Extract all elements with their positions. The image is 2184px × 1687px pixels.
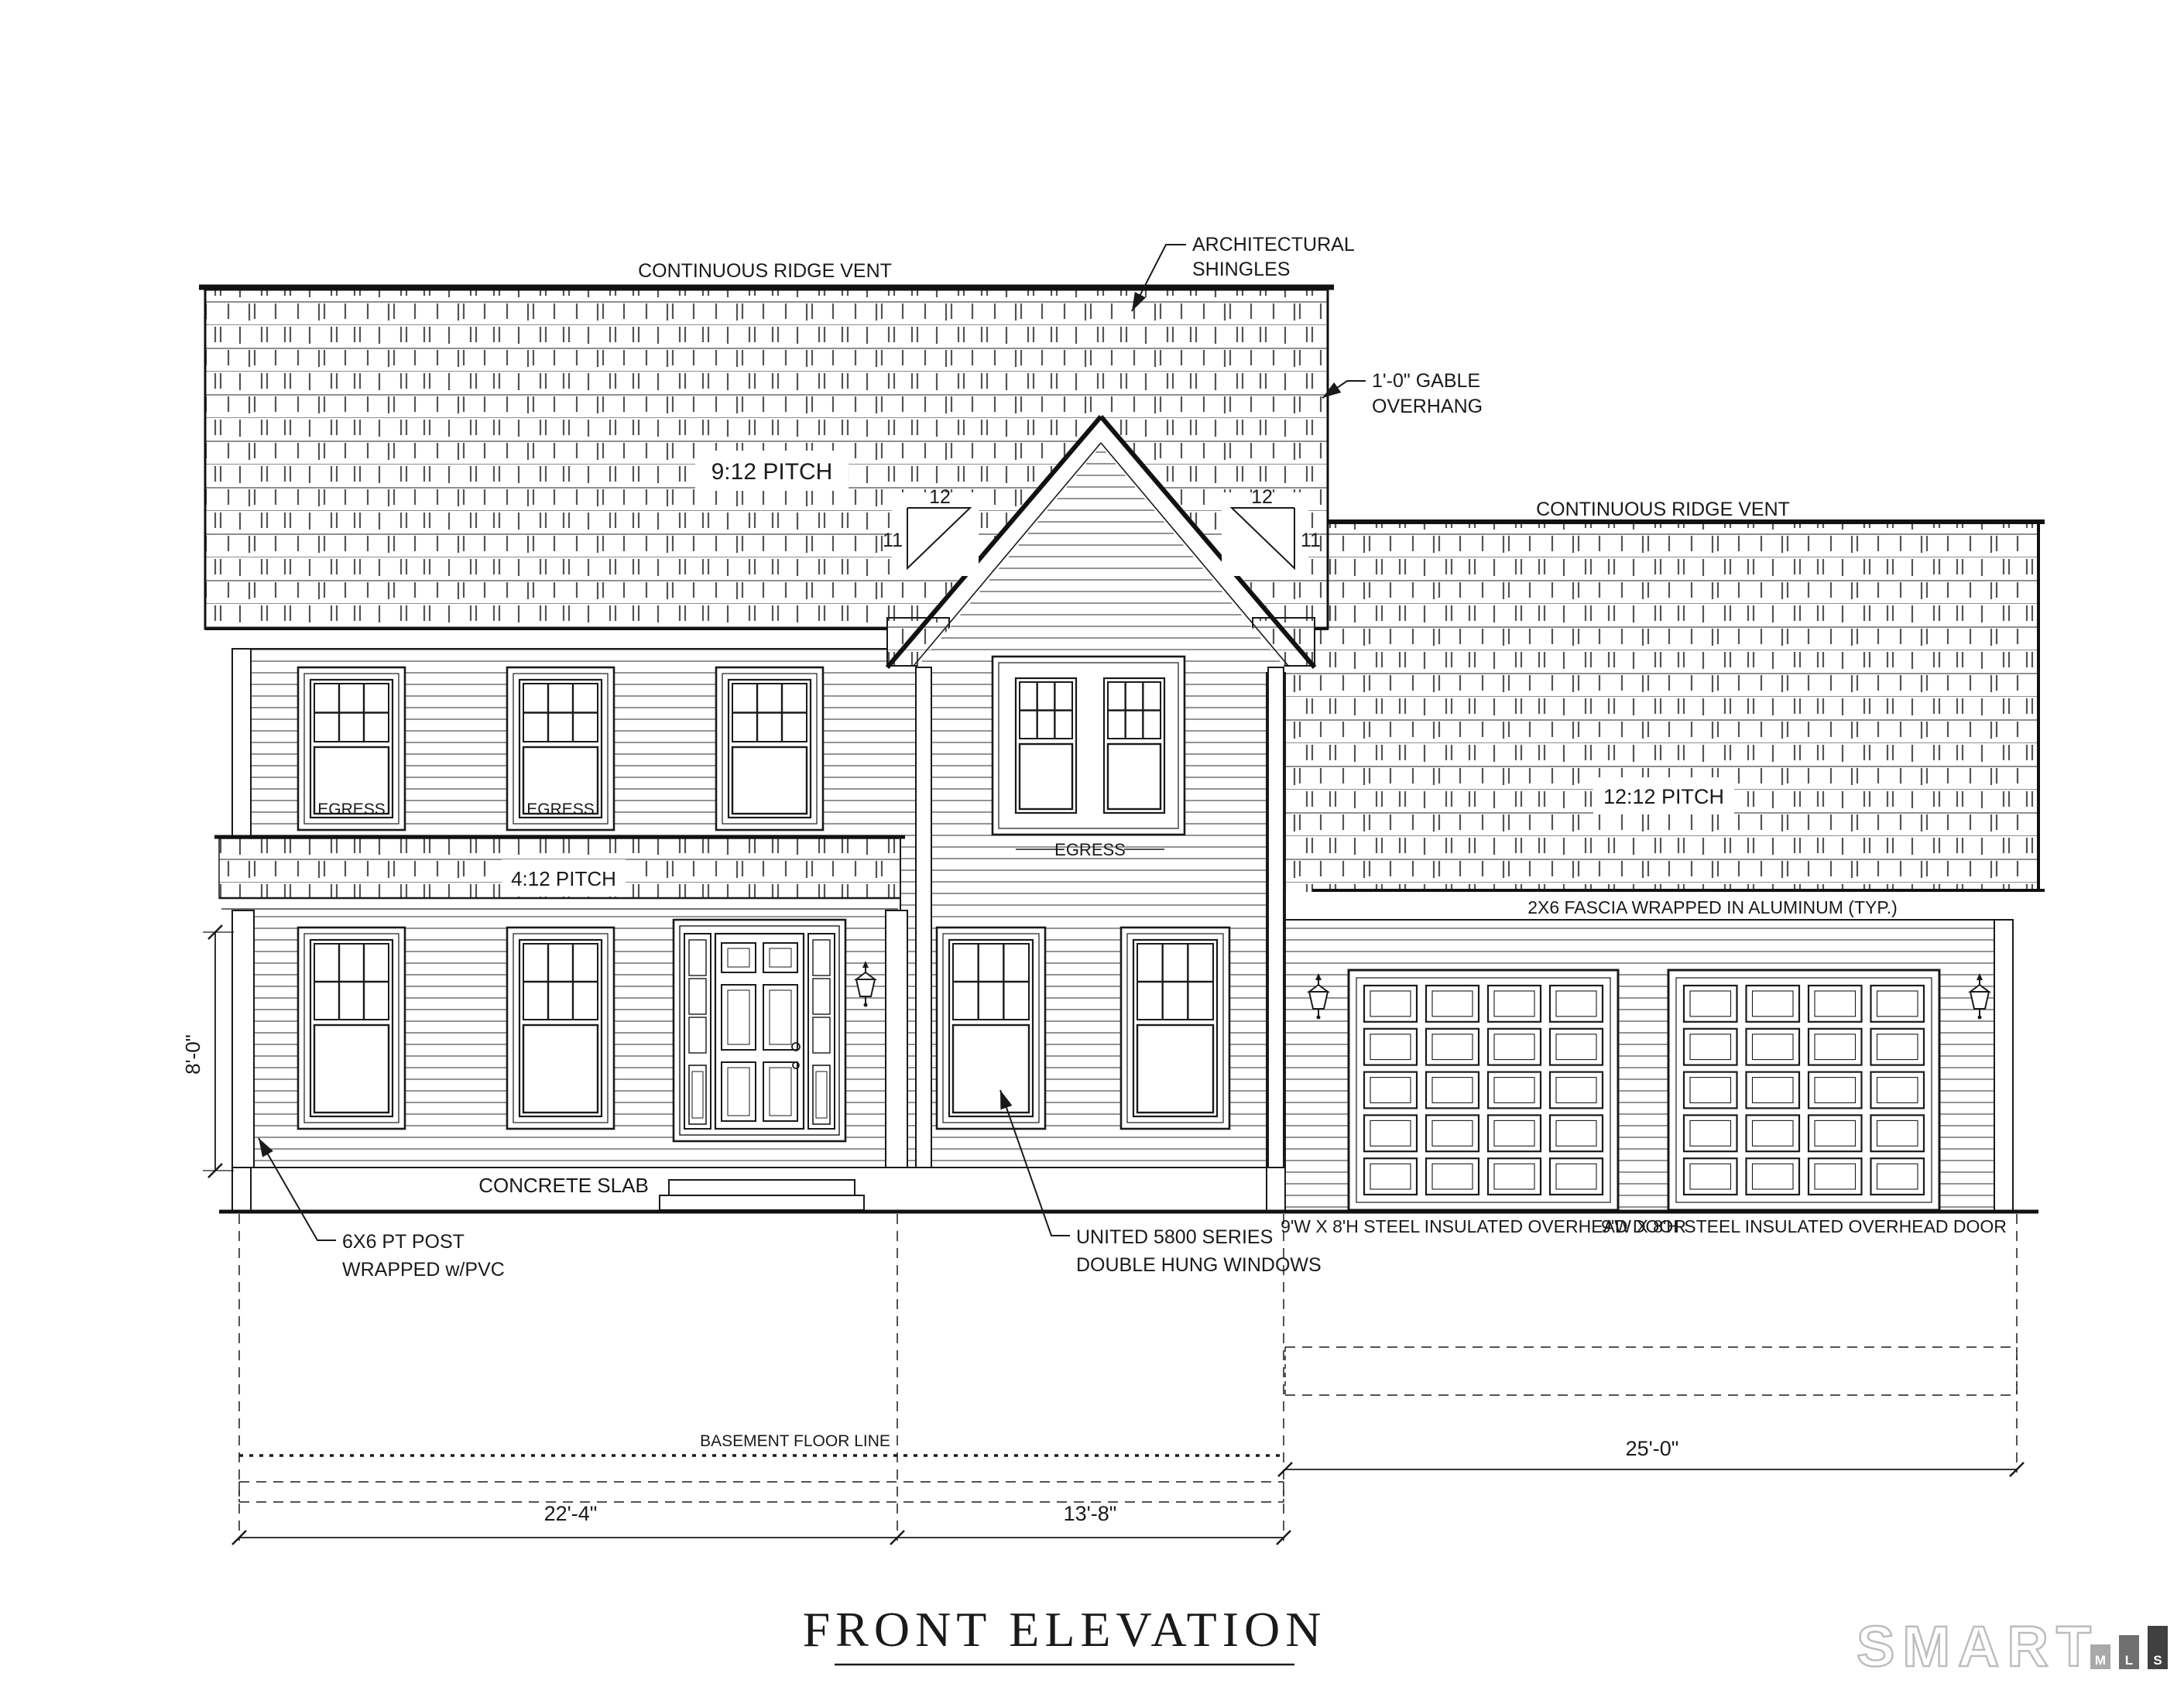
garage-door-right xyxy=(1668,970,1939,1210)
egress-label-2: EGRESS xyxy=(526,801,595,818)
dimension-8-0: 8'-0" xyxy=(181,1034,204,1075)
dimension-13-8: 13'-8" xyxy=(1064,1502,1117,1525)
svg-text:SHINGLES: SHINGLES xyxy=(1192,259,1290,280)
fascia-note: 2X6 FASCIA WRAPPED IN ALUMINUM (TYP.) xyxy=(1527,897,1898,917)
window xyxy=(507,928,614,1129)
garage-ridge-vent-label: CONTINUOUS RIDGE VENT xyxy=(1536,499,1790,520)
front-door xyxy=(674,920,845,1141)
smartmls-logo: SMART M L S xyxy=(1857,1614,2168,1678)
svg-text:6X6 PT POST: 6X6 PT POST xyxy=(342,1231,465,1253)
garage-pitch-label: 12:12 PITCH xyxy=(1593,777,1734,814)
gable-overhang-note: 1'-0" GABLE OVERHANG xyxy=(1322,370,1483,417)
svg-text:WRAPPED w/PVC: WRAPPED w/PVC xyxy=(342,1259,505,1281)
svg-text:4:12 PITCH: 4:12 PITCH xyxy=(511,867,616,890)
main-pitch-label: 9:12 PITCH xyxy=(695,451,849,491)
garage-door-label-right: 9'W X 8'H STEEL INSULATED OVERHEAD DOOR xyxy=(1601,1216,2007,1236)
pitch-indicator-left: 12 11 xyxy=(883,486,979,576)
basement-floor-line-label: BASEMENT FLOOR LINE xyxy=(700,1432,890,1450)
dimension-22-4: 22'-4" xyxy=(544,1502,598,1525)
svg-text:1'-0" GABLE: 1'-0" GABLE xyxy=(1372,370,1480,392)
pitch-indicator-right: 12 11 xyxy=(1222,486,1321,576)
window xyxy=(716,667,823,830)
svg-text:M: M xyxy=(2095,1653,2106,1668)
window xyxy=(298,928,405,1129)
garage-right-corner-board xyxy=(1994,920,2013,1212)
egress-label-1: EGRESS xyxy=(317,801,386,818)
svg-text:ARCHITECTURAL: ARCHITECTURAL xyxy=(1192,234,1355,255)
svg-text:FRONT ELEVATION: FRONT ELEVATION xyxy=(803,1602,1327,1657)
porch-pitch-label: 4:12 PITCH xyxy=(502,859,626,897)
window xyxy=(1121,928,1229,1129)
svg-text:DOUBLE HUNG WINDOWS: DOUBLE HUNG WINDOWS xyxy=(1076,1254,1322,1276)
front-elevation-drawing: CONTINUOUS RIDGE VENT 12:12 PITCH 2X6 FA… xyxy=(0,0,2184,1687)
svg-text:9:12 PITCH: 9:12 PITCH xyxy=(711,459,833,485)
porch-post-right xyxy=(886,910,907,1168)
window xyxy=(937,928,1045,1129)
main-ridge-vent-label: CONTINUOUS RIDGE VENT xyxy=(638,260,892,282)
svg-text:L: L xyxy=(2125,1653,2133,1668)
svg-text:UNITED 5800 SERIES: UNITED 5800 SERIES xyxy=(1076,1226,1273,1248)
garage-door-left xyxy=(1349,970,1618,1210)
svg-text:S: S xyxy=(2153,1653,2162,1668)
svg-text:12: 12 xyxy=(929,486,951,508)
svg-text:12: 12 xyxy=(1251,486,1273,508)
door-step xyxy=(660,1180,864,1210)
dimension-25-0: 25'-0" xyxy=(1626,1437,1679,1460)
gable-corner-board-right xyxy=(1268,667,1284,1168)
porch-post-left xyxy=(232,910,254,1168)
concrete-slab-label: CONCRETE SLAB xyxy=(478,1174,649,1197)
architectural-drawing-page: CONTINUOUS RIDGE VENT 12:12 PITCH 2X6 FA… xyxy=(0,0,2184,1687)
gable-corner-board-left xyxy=(916,667,931,1168)
gable-double-window xyxy=(993,657,1185,835)
smart-logo-text: SMART xyxy=(1857,1614,2099,1678)
svg-text:OVERHANG: OVERHANG xyxy=(1372,396,1483,417)
svg-text:12:12 PITCH: 12:12 PITCH xyxy=(1603,785,1724,808)
svg-text:11: 11 xyxy=(883,530,903,551)
drawing-title: FRONT ELEVATION xyxy=(803,1602,1327,1665)
svg-text:11: 11 xyxy=(1301,530,1321,551)
svg-text:EGRESS: EGRESS xyxy=(1054,840,1126,859)
